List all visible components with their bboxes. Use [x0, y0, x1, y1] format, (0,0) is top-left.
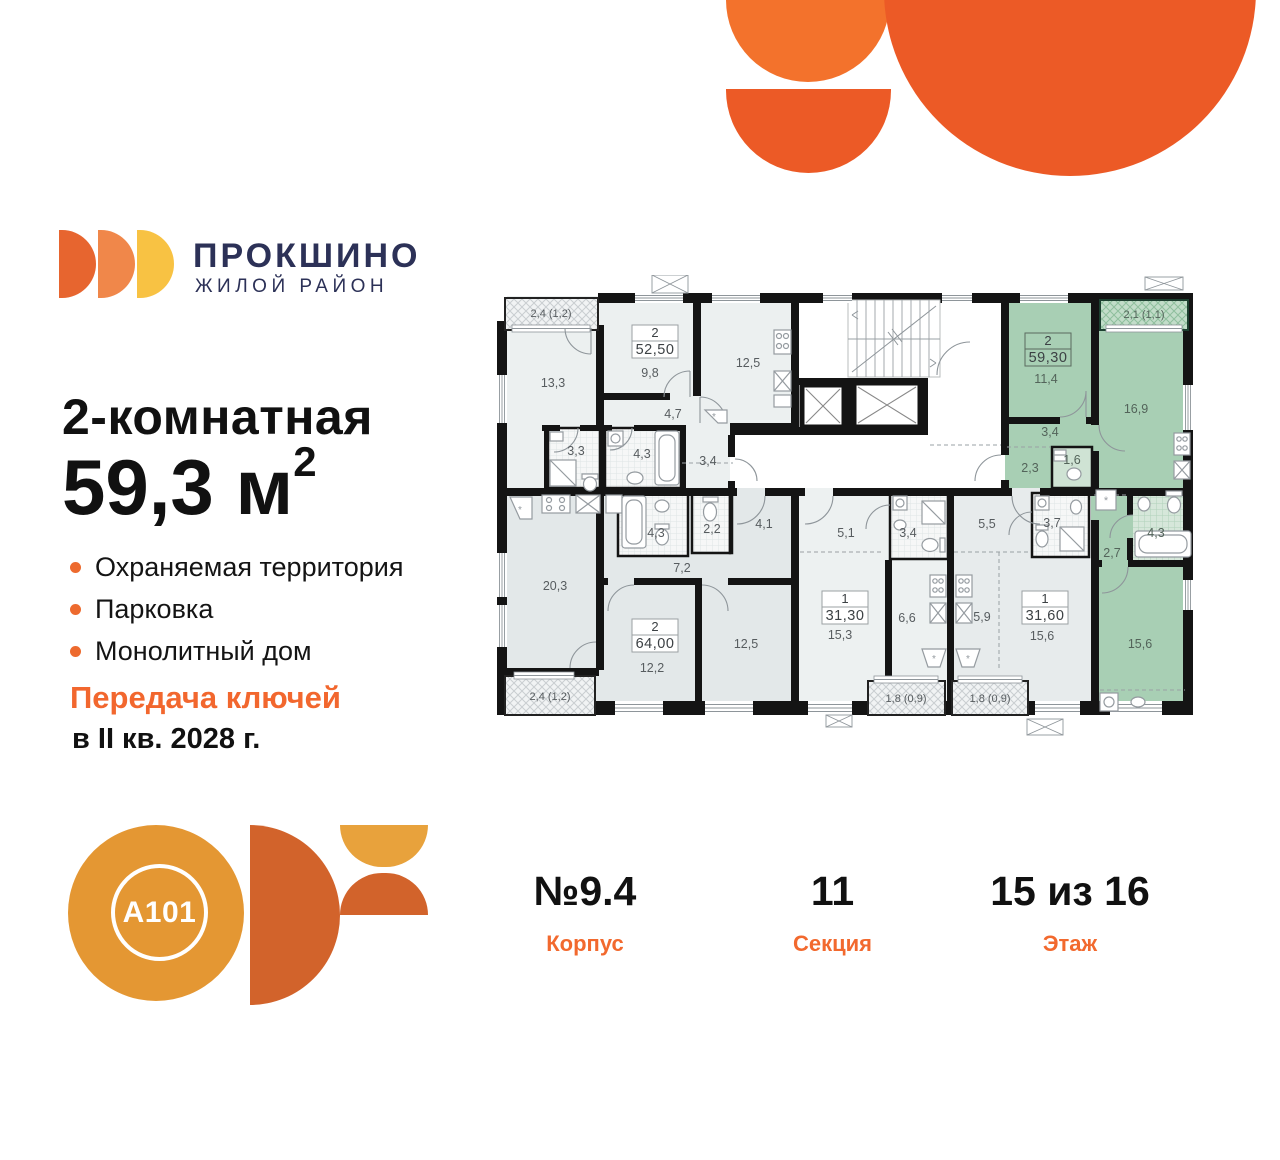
- feature-item: Монолитный дом: [70, 636, 403, 667]
- developer-logo-halfdisc-icon: [250, 825, 340, 1005]
- feature-label: Охраняемая территория: [95, 552, 403, 583]
- building-label: Корпус: [470, 931, 700, 957]
- room-label: 5,9: [973, 610, 990, 624]
- svg-text:1: 1: [841, 591, 848, 606]
- poster-page: ПРОКШИНО ЖИЛОЙ РАЙОН 2-комнатная 59,3 м2…: [0, 0, 1280, 1160]
- floor-label: Этаж: [955, 931, 1185, 957]
- info-box-31_60: 1 31,60: [1022, 591, 1068, 624]
- info-box-64_00: 2 64,00: [632, 619, 678, 652]
- room-label: 3,7: [1043, 516, 1060, 530]
- room-label: 1,8 (0,9): [886, 693, 927, 705]
- brand-name: ПРОКШИНО: [193, 237, 420, 276]
- room-label: 2,4 (1,2): [530, 691, 571, 703]
- developer-logo-top-arc-icon: [340, 825, 428, 867]
- building-number: №9.4: [470, 868, 700, 915]
- room-label: 3,4: [1041, 425, 1058, 439]
- room-label: 15,6: [1128, 637, 1152, 651]
- developer-logo-text: A101: [111, 864, 208, 961]
- svg-text:2: 2: [651, 325, 658, 340]
- room-label: 1,6: [1063, 453, 1080, 467]
- handover-line2: в II кв. 2028 г.: [72, 723, 260, 756]
- deco-semicircle-small-icon: [726, 0, 890, 82]
- feature-label: Монолитный дом: [95, 636, 312, 667]
- building-info: №9.4 Корпус: [470, 868, 700, 957]
- room-label: 12,2: [640, 661, 664, 675]
- floor-info: 15 из 16 Этаж: [955, 868, 1185, 957]
- svg-text:31,60: 31,60: [1026, 608, 1065, 624]
- deco-circle-icon: [884, 0, 1256, 176]
- section-info: 11 Секция: [725, 868, 940, 957]
- brand-arc-icon: [59, 230, 96, 298]
- svg-text:*: *: [518, 505, 522, 516]
- handover-line1: Передача ключей: [70, 680, 341, 716]
- room-label: 15,3: [828, 628, 852, 642]
- room-label: 3,4: [899, 526, 916, 540]
- room-label: 12,5: [736, 356, 760, 370]
- bullet-dot-icon: [70, 604, 81, 615]
- room-label: 4,3: [647, 526, 664, 540]
- room-label: 5,1: [837, 526, 854, 540]
- room-label: 6,6: [898, 611, 915, 625]
- room-label: 12,5: [734, 637, 758, 651]
- feature-item: Охраняемая территория: [70, 552, 403, 583]
- room-label: 15,6: [1030, 629, 1054, 643]
- svg-text:*: *: [966, 654, 970, 665]
- room-label: 20,3: [543, 579, 567, 593]
- feature-label: Парковка: [95, 594, 213, 625]
- svg-text:2: 2: [651, 619, 658, 634]
- developer-logo-bottom-arc-icon: [340, 873, 428, 915]
- room-label: 4,3: [633, 447, 650, 461]
- room-label: 3,4: [699, 454, 716, 468]
- room-label: 2,3: [1021, 461, 1038, 475]
- svg-text:1: 1: [1041, 591, 1048, 606]
- room-label: 9,8: [641, 366, 658, 380]
- feature-list: Охраняемая территория Парковка Монолитны…: [70, 552, 403, 667]
- section-label: Секция: [725, 931, 940, 957]
- area-value: 59,3 м: [62, 443, 293, 531]
- section-number: 11: [725, 868, 940, 915]
- svg-text:52,50: 52,50: [636, 342, 675, 358]
- brand-arc-icon: [137, 230, 174, 298]
- room-label: 3,3: [567, 444, 584, 458]
- room-label: 2,1 (1,1): [1124, 309, 1165, 321]
- bullet-dot-icon: [70, 646, 81, 657]
- floor-plan: * * *: [490, 275, 1210, 745]
- room-label: 2,2: [703, 522, 720, 536]
- info-box-31_30: 1 31,30: [822, 591, 868, 624]
- room-label: 2,4 (1,2): [531, 308, 572, 320]
- feature-item: Парковка: [70, 594, 403, 625]
- apartment-area-title: 59,3 м2: [62, 438, 317, 533]
- svg-text:64,00: 64,00: [636, 636, 675, 652]
- room-label: 5,5: [978, 517, 995, 531]
- svg-text:2: 2: [1044, 333, 1051, 348]
- room-label: 13,3: [541, 376, 565, 390]
- svg-text:31,30: 31,30: [826, 608, 865, 624]
- elevators: [802, 383, 920, 427]
- svg-text:*: *: [932, 654, 936, 665]
- svg-text:*: *: [1104, 495, 1109, 507]
- stairwell: [848, 300, 940, 377]
- room-label: 7,2: [673, 561, 690, 575]
- room-label: 1,8 (0,9): [970, 693, 1011, 705]
- room-label: 2,7: [1103, 546, 1120, 560]
- area-superscript: 2: [293, 438, 316, 485]
- svg-text:59,30: 59,30: [1029, 350, 1068, 366]
- room-label: 16,9: [1124, 402, 1148, 416]
- brand-arc-icon: [98, 230, 135, 298]
- room-label: 11,4: [1034, 372, 1057, 386]
- room-label: 4,3: [1147, 526, 1164, 540]
- svg-text:*: *: [712, 412, 716, 423]
- brand-tagline: ЖИЛОЙ РАЙОН: [195, 276, 388, 298]
- room-label: 4,7: [664, 407, 681, 421]
- room-label: 4,1: [755, 517, 772, 531]
- bullet-dot-icon: [70, 562, 81, 573]
- info-box-52_50: 2 52,50: [632, 325, 678, 358]
- floor-number: 15 из 16: [955, 868, 1185, 915]
- deco-semicircle-large-icon: [726, 89, 891, 173]
